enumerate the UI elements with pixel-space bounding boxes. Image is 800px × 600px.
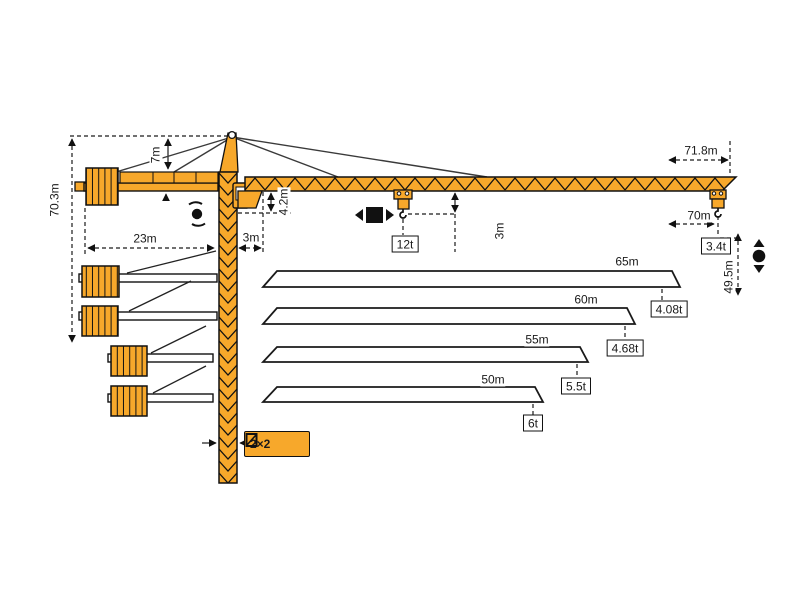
hoist-icon	[753, 239, 766, 273]
hook-trolley-tip	[710, 190, 726, 217]
dim-working-radius: 70m	[686, 210, 711, 223]
dim-apex-offset: 7m	[150, 146, 163, 165]
jib-option-load-50: 6t	[523, 415, 543, 432]
max-load-badge: 12t	[392, 236, 419, 253]
dim-total-height: 70.3m	[49, 182, 62, 217]
mast-section-icon	[245, 432, 258, 448]
jib-option-bar-50m	[263, 387, 543, 402]
dim-counterjib-length: 23m	[132, 233, 157, 246]
apex-pulley	[229, 132, 236, 139]
jib-root-bracket	[238, 191, 262, 208]
dim-hook-offset: 3m	[494, 222, 507, 241]
counterjib-options	[79, 251, 217, 416]
jib-option-length-50: 50m	[480, 374, 505, 387]
dim-hook-height: 49.5m	[723, 259, 736, 294]
jib-option-bar-55m	[263, 347, 588, 362]
main-jib	[238, 177, 736, 208]
jib-option-bar-65m	[263, 271, 680, 287]
counter-jib	[75, 168, 218, 205]
jib-option-length-60: 60m	[573, 294, 598, 307]
jib-option-length-65: 65m	[614, 256, 639, 269]
jib-option-bar-60m	[263, 308, 635, 324]
counterweight-ballast	[86, 168, 118, 205]
jib-option-load-60: 4.68t	[607, 340, 644, 357]
slewing-icon	[189, 202, 205, 226]
hook-icon	[400, 209, 406, 218]
dim-overall-jib: 71.8m	[683, 145, 718, 158]
mast-section-badge: 2×2	[244, 431, 310, 457]
dim-jib-root-depth: 4.2m	[278, 188, 291, 217]
dim-rear-clearance: 3m	[242, 232, 261, 245]
crane-spec-diagram: 70.3m 7m 23m 3m 4.2m 3m 71.8m 70m 49.5m …	[0, 0, 800, 600]
tip-load-badge: 3.4t	[701, 238, 731, 255]
jib-option-bars	[263, 271, 680, 402]
hook-icon	[715, 208, 721, 217]
tie-cables	[116, 137, 487, 177]
jib-option-load-55: 5.5t	[561, 378, 591, 395]
jib-option-length-55: 55m	[524, 334, 549, 347]
trolley-travel-icon	[355, 207, 394, 223]
jib-option-load-65: 4.08t	[651, 301, 688, 318]
